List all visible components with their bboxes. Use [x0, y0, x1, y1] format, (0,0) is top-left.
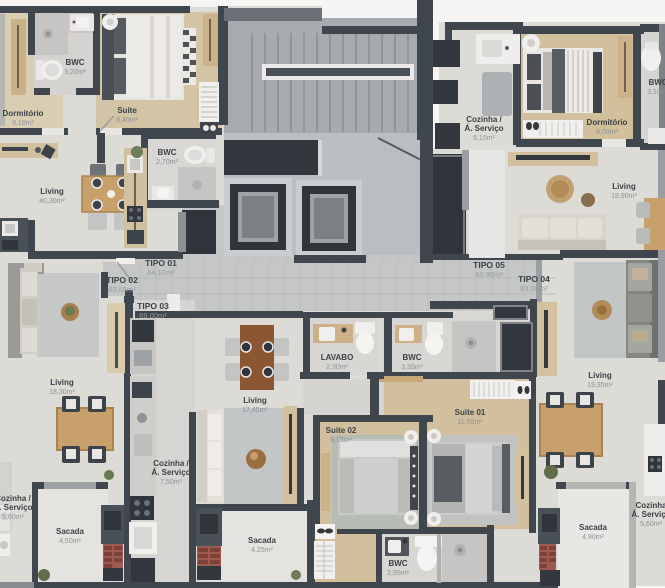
svg-text:Suite: Suite	[117, 106, 137, 115]
svg-text:2,95m²: 2,95m²	[387, 570, 409, 577]
svg-text:5,60m²: 5,60m²	[640, 521, 662, 528]
svg-text:Cozinha /: Cozinha /	[153, 459, 189, 468]
svg-text:Sacada: Sacada	[56, 527, 85, 536]
svg-text:40,30m²: 40,30m²	[39, 198, 65, 205]
svg-text:TIPO 03: TIPO 03	[137, 301, 169, 311]
svg-text:69,00m²: 69,00m²	[139, 311, 167, 320]
svg-text:Á. Serviço: Á. Serviço	[0, 503, 33, 512]
svg-text:Living: Living	[612, 182, 636, 191]
svg-text:4,90m²: 4,90m²	[582, 534, 604, 541]
svg-text:7,50m²: 7,50m²	[160, 479, 182, 486]
svg-text:BWC: BWC	[65, 58, 84, 67]
svg-text:4,50m²: 4,50m²	[59, 538, 81, 545]
svg-text:TIPO 02: TIPO 02	[106, 275, 138, 285]
svg-text:Suite 01: Suite 01	[455, 408, 486, 417]
svg-text:6,15m²: 6,15m²	[473, 135, 495, 142]
svg-text:Living: Living	[50, 378, 74, 387]
svg-text:BWC: BWC	[157, 148, 176, 157]
svg-text:63,35m²: 63,35m²	[520, 284, 548, 293]
svg-text:63,65m²: 63,65m²	[108, 285, 136, 294]
svg-text:LAVABO: LAVABO	[321, 353, 354, 362]
svg-text:Living: Living	[40, 187, 64, 196]
svg-text:Cozinha /: Cozinha /	[466, 115, 502, 124]
svg-text:Á. Serviço: Á. Serviço	[151, 468, 190, 477]
svg-text:Suite 02: Suite 02	[326, 426, 357, 435]
svg-text:3,10m²: 3,10m²	[647, 89, 665, 96]
svg-text:BWC: BWC	[648, 78, 665, 87]
svg-text:9,40m²: 9,40m²	[116, 117, 138, 124]
svg-text:BWC: BWC	[388, 559, 407, 568]
svg-text:TIPO 01: TIPO 01	[145, 258, 177, 268]
svg-text:3,20m²: 3,20m²	[64, 69, 86, 76]
svg-text:Dormitório: Dormitório	[587, 118, 628, 127]
svg-text:Dormitório: Dormitório	[3, 109, 44, 118]
svg-text:Cozinha: Cozinha	[635, 501, 665, 510]
svg-text:60,90m²: 60,90m²	[475, 270, 503, 279]
svg-text:Sacada: Sacada	[579, 523, 608, 532]
svg-text:4,25m²: 4,25m²	[251, 547, 273, 554]
svg-text:18,90m²: 18,90m²	[611, 193, 637, 200]
svg-text:9,15m²: 9,15m²	[330, 437, 352, 444]
svg-text:Living: Living	[588, 371, 612, 380]
svg-text:Á. Serviço: Á. Serviço	[464, 124, 503, 133]
svg-text:18,30m²: 18,30m²	[49, 389, 75, 396]
svg-text:5,60m²: 5,60m²	[2, 514, 24, 521]
svg-text:2,30m²: 2,30m²	[326, 364, 348, 371]
svg-text:BWC: BWC	[402, 353, 421, 362]
svg-text:17,45m²: 17,45m²	[242, 407, 268, 414]
svg-text:2,70m²: 2,70m²	[156, 159, 178, 166]
svg-text:64,10m²: 64,10m²	[147, 268, 175, 277]
svg-text:TIPO 05: TIPO 05	[473, 260, 505, 270]
svg-text:9,10m²: 9,10m²	[12, 120, 34, 127]
svg-text:Cozinha /: Cozinha /	[0, 494, 32, 503]
svg-text:Living: Living	[243, 396, 267, 405]
svg-text:19,35m²: 19,35m²	[587, 382, 613, 389]
svg-text:3,35m²: 3,35m²	[401, 364, 423, 371]
svg-text:Á. Serviço: Á. Serviço	[631, 510, 665, 519]
svg-text:Sacada: Sacada	[248, 536, 277, 545]
svg-text:11,55m²: 11,55m²	[457, 419, 483, 426]
svg-text:8,00m²: 8,00m²	[596, 129, 618, 136]
svg-text:TIPO 04: TIPO 04	[518, 274, 550, 284]
